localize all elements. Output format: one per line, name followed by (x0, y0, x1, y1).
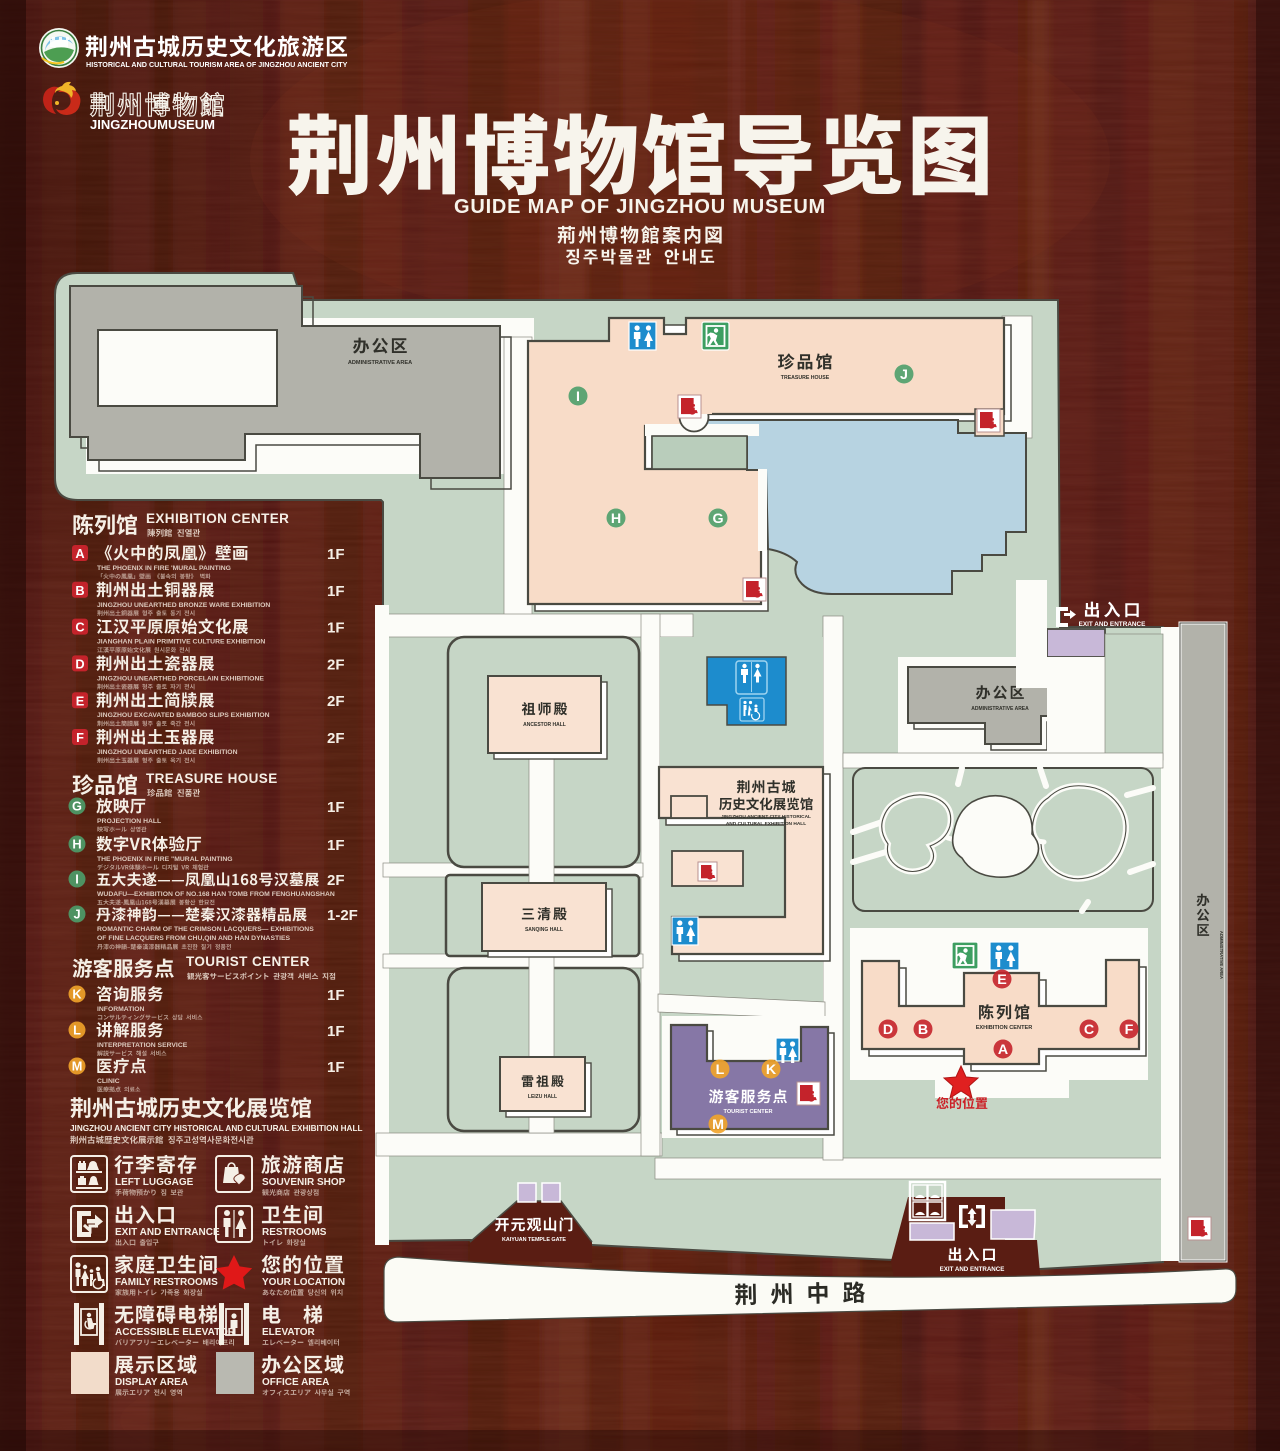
svg-text:DISPLAY AREA: DISPLAY AREA (115, 1377, 188, 1388)
svg-text:2F: 2F (327, 730, 345, 747)
svg-text:H: H (72, 836, 81, 851)
svg-text:EXIT AND ENTRANCE: EXIT AND ENTRANCE (1079, 621, 1147, 628)
svg-text:JINGZHOU EXCAVATED BAMBOO SLIP: JINGZHOU EXCAVATED BAMBOO SLIPS EXHIBITI… (97, 712, 270, 719)
svg-text:HISTORICAL AND CULTURAL TOURIS: HISTORICAL AND CULTURAL TOURISM AREA OF … (86, 60, 348, 69)
svg-text:B: B (75, 583, 84, 598)
svg-text:G: G (72, 798, 82, 813)
svg-text:LEIZU HALL: LEIZU HALL (528, 1094, 557, 1100)
svg-text:1F: 1F (327, 1059, 345, 1076)
svg-text:2F: 2F (327, 872, 345, 889)
svg-text:J: J (73, 906, 80, 921)
svg-text:JINGZHOU ANCIENT CITY HISTORIC: JINGZHOU ANCIENT CITY HISTORICAL AND CUL… (70, 1124, 362, 1133)
svg-text:ADMINISTRATIVE AREA: ADMINISTRATIVE AREA (1219, 931, 1224, 979)
svg-text:CLINIC: CLINIC (97, 1078, 120, 1085)
svg-text:LEFT LUGGAGE: LEFT LUGGAGE (115, 1177, 194, 1188)
svg-text:L: L (716, 1062, 725, 1078)
svg-text:E: E (76, 693, 85, 708)
svg-text:A: A (75, 546, 84, 561)
svg-text:A: A (998, 1042, 1008, 1058)
svg-text:D: D (75, 657, 84, 672)
svg-text:PROJECTION HALL: PROJECTION HALL (97, 818, 161, 825)
svg-text:1F: 1F (327, 837, 345, 854)
svg-text:K: K (72, 986, 82, 1001)
svg-text:F: F (1125, 1022, 1134, 1038)
svg-text:1F: 1F (327, 620, 345, 637)
svg-text:THE PHOENIX IN FIRE 'MURAL PAI: THE PHOENIX IN FIRE 'MURAL PAINTING (97, 565, 231, 572)
svg-text:2F: 2F (327, 656, 345, 673)
svg-text:C: C (1084, 1022, 1094, 1038)
svg-text:TREASURE HOUSE: TREASURE HOUSE (781, 375, 830, 381)
svg-text:I: I (75, 871, 79, 886)
svg-text:FAMILY RESTROOMS: FAMILY RESTROOMS (115, 1277, 218, 1288)
svg-text:1F: 1F (327, 546, 345, 563)
svg-text:GUIDE MAP OF JINGZHOU MUSEUM: GUIDE MAP OF JINGZHOU MUSEUM (454, 196, 826, 218)
svg-text:J: J (900, 367, 908, 383)
svg-text:1F: 1F (327, 1023, 345, 1040)
svg-text:JINGZHOUMUSEUM: JINGZHOUMUSEUM (90, 117, 215, 132)
svg-text:JINGZHOU UNEARTHED JADE EXHIBI: JINGZHOU UNEARTHED JADE EXHIBITION (97, 749, 238, 756)
svg-text:YOUR LOCATION: YOUR LOCATION (262, 1277, 345, 1288)
svg-text:INFORMATION: INFORMATION (97, 1006, 145, 1013)
svg-text:2F: 2F (327, 693, 345, 710)
svg-text:C: C (75, 620, 84, 635)
svg-text:B: B (918, 1022, 928, 1038)
svg-text:RESTROOMS: RESTROOMS (262, 1227, 327, 1238)
svg-text:1-2F: 1-2F (327, 907, 358, 924)
svg-text:D: D (883, 1022, 893, 1038)
svg-text:F: F (76, 730, 84, 745)
svg-text:M: M (712, 1117, 724, 1133)
svg-text:EXIT AND ENTRANCE: EXIT AND ENTRANCE (115, 1227, 220, 1238)
svg-text:1F: 1F (327, 799, 345, 816)
svg-text:KAIYUAN TEMPLE GATE: KAIYUAN TEMPLE GATE (502, 1237, 566, 1243)
svg-text:TOURIST CENTER: TOURIST CENTER (186, 954, 310, 969)
svg-text:E: E (997, 972, 1007, 988)
svg-text:THE PHOENIX IN FIRE "MURAL PAI: THE PHOENIX IN FIRE "MURAL PAINTING (97, 856, 233, 863)
svg-text:EXIT AND ENTRANCE: EXIT AND ENTRANCE (940, 1266, 1005, 1273)
svg-text:L: L (73, 1022, 81, 1037)
svg-text:AND CULTURAL EXHIBITION HALL: AND CULTURAL EXHIBITION HALL (726, 821, 806, 827)
svg-text:ELEVATOR: ELEVATOR (262, 1327, 316, 1338)
svg-text:SOUVENIR SHOP: SOUVENIR SHOP (262, 1177, 346, 1188)
svg-text:JINGZHOU UNEARTHED BRONZE WARE: JINGZHOU UNEARTHED BRONZE WARE EXHIBITIO… (97, 602, 270, 609)
svg-text:ACCESSIBLE ELEVATOR: ACCESSIBLE ELEVATOR (115, 1327, 236, 1338)
svg-text:JINGZHOU ANCIENT CITY HISTORIC: JINGZHOU ANCIENT CITY HISTORICAL (721, 814, 811, 820)
svg-text:JINGZHOU UNEARTHED PORCELAIN E: JINGZHOU UNEARTHED PORCELAIN EXHIBITIONE (97, 675, 264, 682)
svg-text:SANQING HALL: SANQING HALL (525, 927, 563, 933)
svg-text:TOURIST CENTER: TOURIST CENTER (724, 1109, 773, 1115)
svg-text:ROMANTIC CHARM OF THE CRIMSON: ROMANTIC CHARM OF THE CRIMSON LACQUERS— … (97, 926, 314, 933)
svg-text:ADMINISTRATIVE AREA: ADMINISTRATIVE AREA (971, 706, 1029, 712)
svg-text:H: H (611, 511, 621, 527)
svg-text:OFFICE AREA: OFFICE AREA (262, 1377, 329, 1388)
svg-text:EXHIBITION CENTER: EXHIBITION CENTER (146, 511, 289, 526)
svg-text:K: K (766, 1062, 777, 1078)
svg-text:1F: 1F (327, 583, 345, 600)
svg-text:WUDAFU—EXHIBITION OF NO.168 HA: WUDAFU—EXHIBITION OF NO.168 HAN TOMB FRO… (97, 891, 335, 898)
svg-text:ANCESTOR HALL: ANCESTOR HALL (523, 722, 566, 728)
svg-text:I: I (576, 389, 580, 405)
svg-text:ADMINISTRATIVE AREA: ADMINISTRATIVE AREA (348, 360, 412, 366)
svg-text:M: M (72, 1058, 83, 1073)
svg-text:INTERPRETATION SERVICE: INTERPRETATION SERVICE (97, 1042, 188, 1049)
svg-text:G: G (712, 511, 723, 527)
svg-text:EXHIBITION CENTER: EXHIBITION CENTER (976, 1025, 1033, 1031)
svg-text:1F: 1F (327, 987, 345, 1004)
svg-text:JIANGHAN PLAIN PRIMITIVE CULTU: JIANGHAN PLAIN PRIMITIVE CULTURE EXHIBIT… (97, 639, 265, 646)
svg-text:TREASURE HOUSE: TREASURE HOUSE (146, 771, 278, 786)
svg-text:OF FINE LACQUERS FROM CHU,QIN: OF FINE LACQUERS FROM CHU,QIN AND HAN DY… (97, 935, 291, 942)
